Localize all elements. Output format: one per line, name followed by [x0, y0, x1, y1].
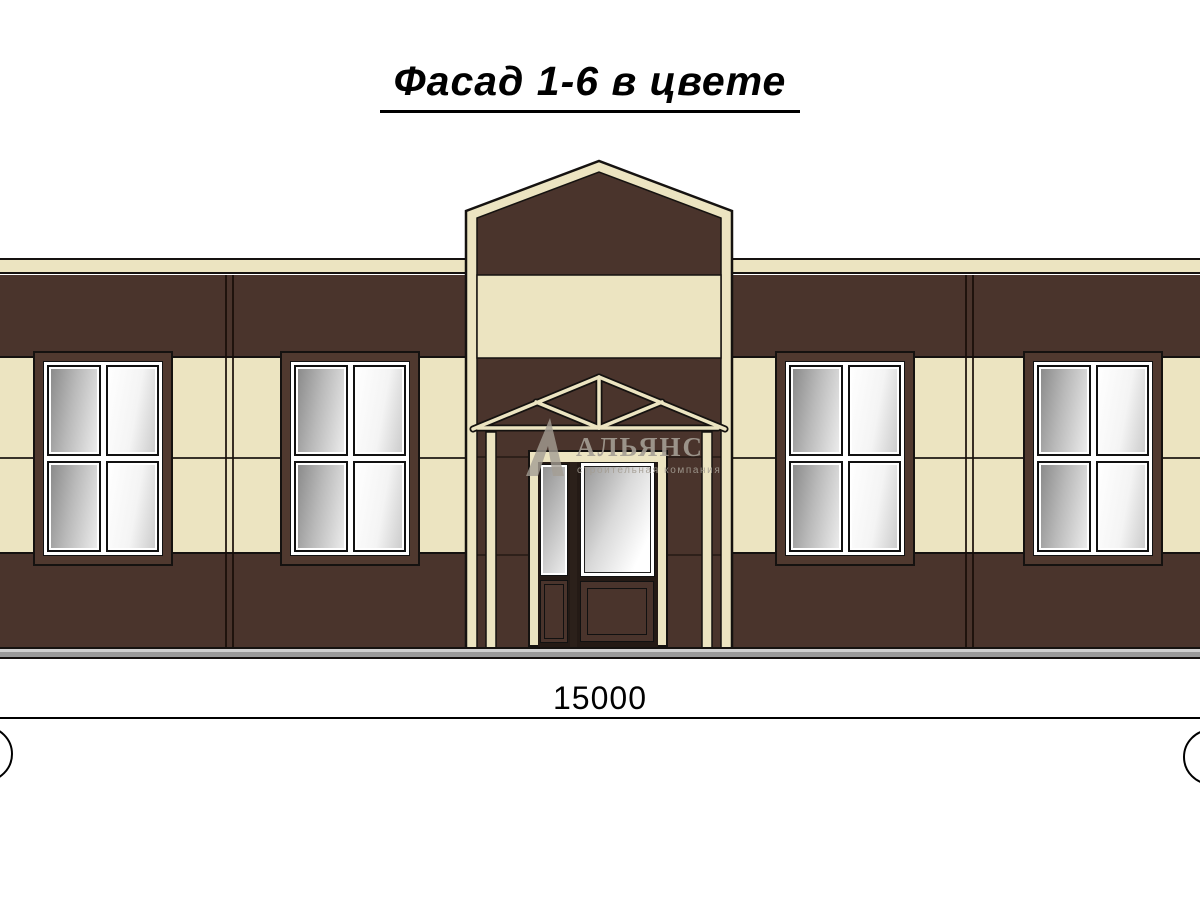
window-sash: [1033, 361, 1153, 556]
window-1: [33, 351, 173, 566]
dimension-label: 15000: [0, 680, 1200, 717]
window-pane: [1037, 461, 1091, 552]
door-sidelight-panel: [540, 580, 568, 643]
roof-fascia-band: [0, 258, 1200, 274]
panel-joint-line: [965, 275, 974, 647]
window-pane: [294, 365, 348, 456]
window-sash: [290, 361, 410, 556]
plinth-strip: [0, 647, 1200, 659]
window-pane: [789, 461, 843, 552]
window-pane: [106, 461, 160, 552]
window-2: [280, 351, 420, 566]
facade-drawing: Фасад 1-6 в цвете: [0, 0, 1200, 900]
door-leaf-panel: [580, 581, 654, 642]
window-pane: [47, 461, 101, 552]
axis-bubble-right: [1183, 729, 1200, 785]
door-stile: [570, 462, 577, 647]
dimension-line: [0, 717, 1200, 719]
window-pane: [848, 461, 902, 552]
door-sidelight-glass: [540, 464, 568, 576]
window-pane: [848, 365, 902, 456]
window-pane: [1096, 461, 1150, 552]
window-pane: [106, 365, 160, 456]
panel-joint-line: [225, 275, 234, 647]
window-pane: [294, 461, 348, 552]
axis-bubble-left: [0, 726, 13, 782]
window-3: [775, 351, 915, 566]
window-pane: [1037, 365, 1091, 456]
window-pane: [47, 365, 101, 456]
window-sash: [785, 361, 905, 556]
door-leaf-glass-frame: [580, 462, 655, 577]
title-row: Фасад 1-6 в цвете: [0, 58, 1180, 113]
window-4: [1023, 351, 1163, 566]
window-pane: [1096, 365, 1150, 456]
window-sash: [43, 361, 163, 556]
drawing-title: Фасад 1-6 в цвете: [380, 58, 801, 113]
window-pane: [353, 365, 407, 456]
window-pane: [353, 461, 407, 552]
door-leaf-glass: [584, 466, 651, 573]
window-pane: [789, 365, 843, 456]
